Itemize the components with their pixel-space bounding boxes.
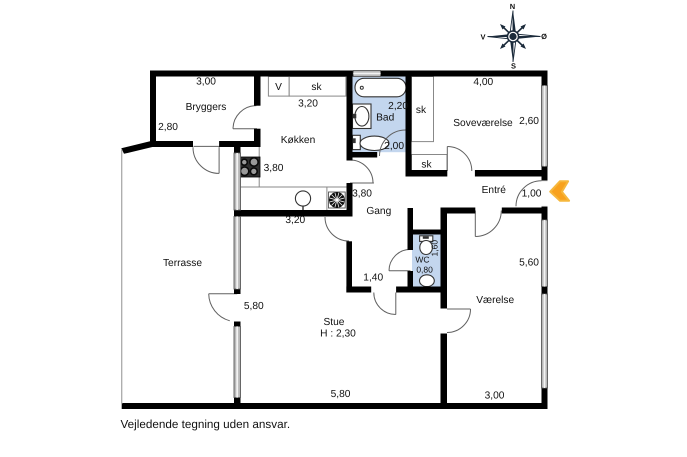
svg-text:4,00: 4,00 (473, 77, 493, 88)
svg-text:1,00: 1,00 (522, 189, 542, 200)
svg-text:H : 2,30: H : 2,30 (320, 329, 356, 340)
svg-text:3,20: 3,20 (298, 99, 318, 110)
svg-text:N: N (510, 2, 515, 11)
svg-text:Værelse: Værelse (476, 295, 514, 306)
svg-text:Køkken: Køkken (281, 135, 316, 146)
svg-text:3,00: 3,00 (485, 391, 505, 402)
svg-text:3,80: 3,80 (352, 188, 372, 199)
svg-text:sk: sk (311, 82, 322, 93)
svg-text:3,80: 3,80 (264, 163, 284, 174)
svg-text:5,60: 5,60 (519, 258, 539, 269)
svg-text:0,80: 0,80 (416, 264, 433, 274)
svg-text:Stue: Stue (324, 317, 345, 328)
svg-text:2,20: 2,20 (388, 101, 408, 112)
svg-text:2,80: 2,80 (158, 122, 178, 133)
svg-text:sk: sk (421, 160, 432, 171)
svg-text:2,60: 2,60 (519, 116, 539, 127)
svg-text:Gang: Gang (366, 206, 391, 217)
svg-text:3,20: 3,20 (285, 215, 305, 226)
svg-text:V: V (275, 82, 282, 93)
svg-text:Ø: Ø (541, 32, 547, 41)
svg-text:V: V (480, 32, 485, 41)
svg-text:Entré: Entré (482, 185, 507, 196)
svg-text:Vejledende tegning uden ansvar: Vejledende tegning uden ansvar. (121, 418, 291, 431)
svg-text:WC: WC (415, 255, 429, 265)
svg-text:sk: sk (416, 105, 427, 116)
svg-text:Soveværelse: Soveværelse (453, 118, 513, 129)
svg-text:1,40: 1,40 (363, 272, 383, 283)
svg-text:S: S (511, 62, 516, 71)
svg-text:Terrasse: Terrasse (163, 258, 202, 269)
svg-text:Bryggers: Bryggers (186, 102, 227, 113)
svg-text:Bad: Bad (376, 113, 394, 124)
svg-text:2,00: 2,00 (384, 141, 404, 152)
svg-text:5,80: 5,80 (244, 301, 264, 312)
svg-text:5,80: 5,80 (331, 389, 351, 400)
svg-text:1,60: 1,60 (430, 240, 440, 257)
svg-text:3,00: 3,00 (196, 77, 216, 88)
